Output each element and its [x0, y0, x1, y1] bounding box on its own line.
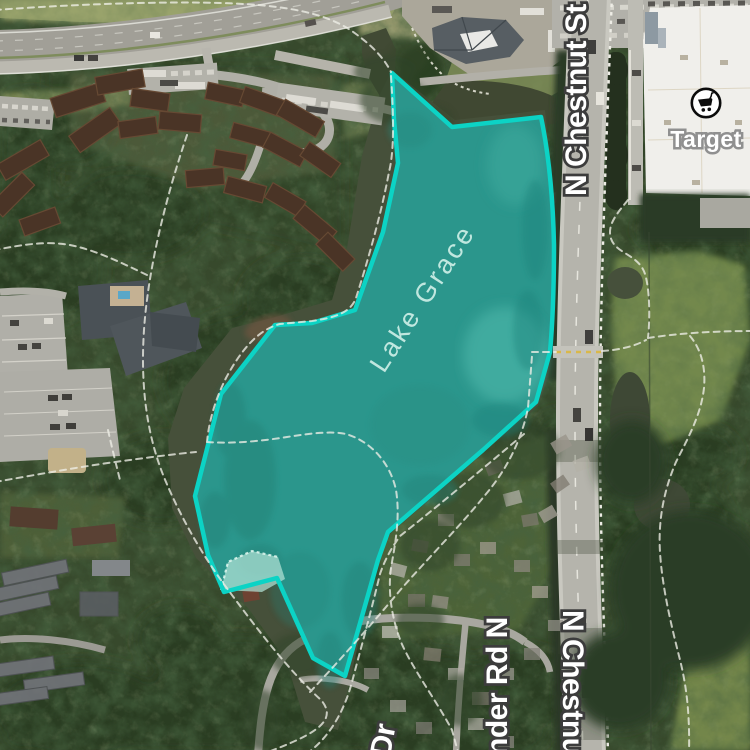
svg-text:Target: Target	[670, 126, 742, 152]
svg-text:N Chestnut St: N Chestnut St	[556, 610, 589, 750]
svg-text:N Chestnut St: N Chestnut St	[560, 4, 593, 196]
svg-text:nder Rd N: nder Rd N	[481, 617, 514, 750]
